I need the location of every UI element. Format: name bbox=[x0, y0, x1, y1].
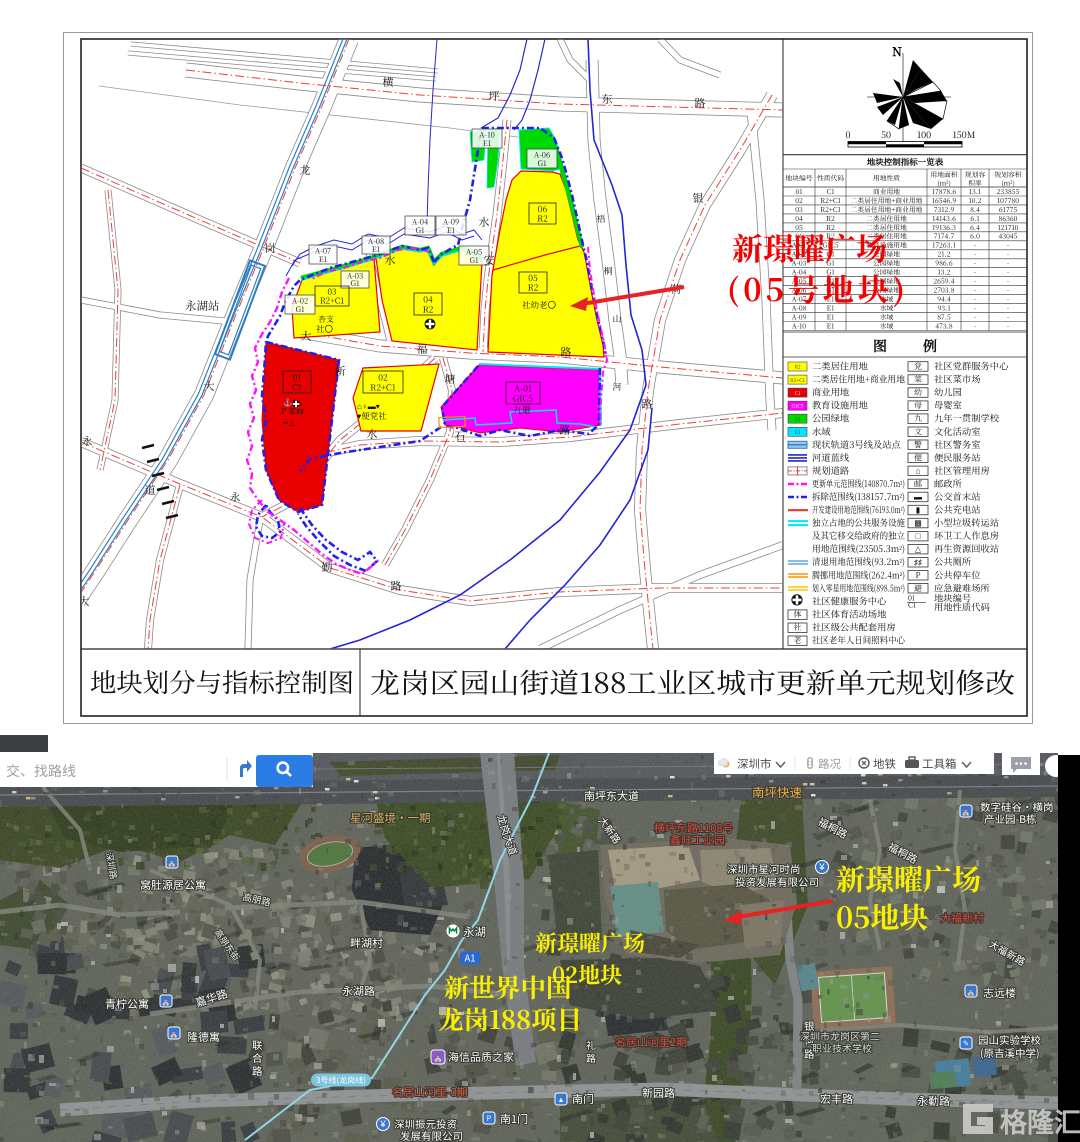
svg-text:▾便党社: ▾便党社 bbox=[357, 410, 387, 422]
svg-text:商业用地: 商业用地 bbox=[812, 385, 849, 399]
svg-text:投资发展有限公司: 投资发展有限公司 bbox=[735, 875, 819, 890]
svg-text:3号线(龙岗线): 3号线(龙岗线) bbox=[316, 1075, 366, 1086]
svg-text:A-10: A-10 bbox=[792, 320, 806, 330]
svg-text:C1: C1 bbox=[795, 390, 801, 397]
svg-text:东: 东 bbox=[602, 91, 613, 107]
svg-text:路: 路 bbox=[642, 396, 653, 412]
svg-text:性质代码: 性质代码 bbox=[817, 173, 844, 183]
svg-text:C1: C1 bbox=[908, 600, 916, 610]
svg-text:龙: 龙 bbox=[300, 162, 311, 178]
svg-text:格隆汇: 格隆汇 bbox=[1000, 1101, 1080, 1140]
svg-text:石: 石 bbox=[455, 428, 466, 444]
svg-text:道: 道 bbox=[145, 482, 156, 498]
svg-text:⌂: ⌂ bbox=[916, 465, 921, 476]
svg-text:大: 大 bbox=[204, 378, 215, 394]
svg-text:水: 水 bbox=[385, 252, 396, 268]
svg-text:P: P bbox=[915, 570, 920, 581]
svg-text:工具箱: 工具箱 bbox=[922, 756, 957, 772]
svg-text:□: □ bbox=[916, 531, 921, 542]
svg-text:¥: ¥ bbox=[379, 1117, 386, 1130]
svg-text:永湖: 永湖 bbox=[463, 924, 486, 940]
svg-text:河道蓝线: 河道蓝线 bbox=[812, 450, 850, 464]
svg-text:小型垃圾转运站: 小型垃圾转运站 bbox=[934, 515, 999, 529]
svg-text:文化活动室: 文化活动室 bbox=[934, 424, 981, 438]
svg-text:▬: ▬ bbox=[914, 492, 922, 503]
svg-text:南1门: 南1门 bbox=[500, 1111, 528, 1127]
svg-text:社区党群服务中心: 社区党群服务中心 bbox=[934, 359, 1009, 373]
svg-text:党: 党 bbox=[914, 361, 922, 372]
svg-text:路: 路 bbox=[560, 422, 571, 438]
svg-text:坪: 坪 bbox=[489, 88, 500, 104]
svg-text:P 菜♯♯: P 菜♯♯ bbox=[281, 406, 304, 417]
svg-text:用地性质: 用地性质 bbox=[873, 173, 900, 183]
svg-text:母婴室: 母婴室 bbox=[934, 398, 962, 412]
svg-text:E1: E1 bbox=[319, 254, 328, 265]
svg-text:现状轨道3号线及站点: 现状轨道3号线及站点 bbox=[812, 437, 902, 451]
svg-text:水域: 水域 bbox=[880, 320, 894, 330]
svg-text:畔湖村: 畔湖村 bbox=[350, 935, 383, 951]
svg-text:G1: G1 bbox=[295, 304, 305, 315]
svg-text:地块划分与指标控制图: 地块划分与指标控制图 bbox=[90, 663, 354, 700]
svg-text:社区警务室: 社区警务室 bbox=[934, 437, 981, 451]
svg-text:G1: G1 bbox=[794, 416, 801, 423]
svg-text:R2: R2 bbox=[794, 364, 801, 371]
svg-text:05地块: 05地块 bbox=[836, 896, 928, 937]
svg-text:地铁: 地铁 bbox=[873, 756, 896, 772]
svg-text:▪▪ △: ▪▪ △ bbox=[283, 418, 296, 428]
svg-text:九年一贯制学校: 九年一贯制学校 bbox=[934, 411, 1000, 425]
svg-text:名居山河里-3期: 名居山河里-3期 bbox=[392, 1084, 468, 1100]
svg-text:菜: 菜 bbox=[914, 374, 922, 385]
svg-text:幼: 幼 bbox=[914, 387, 922, 398]
svg-text:警: 警 bbox=[914, 439, 922, 450]
svg-text:南坪快速: 南坪快速 bbox=[752, 782, 803, 801]
svg-text:G1: G1 bbox=[415, 225, 425, 236]
svg-text:桐: 桐 bbox=[603, 264, 612, 277]
svg-text:再生资源回收站: 再生资源回收站 bbox=[934, 541, 999, 555]
svg-text:窝肚源居公寓: 窝肚源居公寓 bbox=[140, 877, 206, 893]
svg-text:永湖站: 永湖站 bbox=[185, 298, 220, 314]
svg-text:50: 50 bbox=[881, 128, 891, 141]
svg-text:▩: ▩ bbox=[914, 518, 922, 529]
svg-text:社幼老〇: 社幼老〇 bbox=[522, 299, 557, 311]
svg-text:⛪: ⛪ bbox=[167, 857, 176, 868]
svg-text:独立占地的公共服务设施: 独立占地的公共服务设施 bbox=[812, 515, 906, 529]
svg-text:E1: E1 bbox=[795, 429, 801, 436]
svg-text:路: 路 bbox=[252, 1064, 263, 1079]
svg-text:划入零星用地范围线(898.5m²): 划入零星用地范围线(898.5m²) bbox=[812, 580, 905, 594]
svg-text:山: 山 bbox=[612, 312, 621, 325]
svg-text:社区体育活动场地: 社区体育活动场地 bbox=[812, 606, 886, 620]
svg-text:⛪: ⛪ bbox=[433, 1052, 443, 1063]
svg-text:路: 路 bbox=[586, 1050, 596, 1065]
svg-text:¥: ¥ bbox=[818, 860, 825, 873]
svg-text:C1: C1 bbox=[292, 382, 302, 394]
svg-text:拆除范围线(138157.7m²): 拆除范围线(138157.7m²) bbox=[812, 489, 905, 503]
svg-text:九: 九 bbox=[914, 413, 922, 424]
svg-text:R2: R2 bbox=[423, 304, 434, 316]
svg-text:横: 横 bbox=[383, 74, 394, 90]
svg-text:新璟曜广场: 新璟曜广场 bbox=[836, 858, 981, 899]
svg-text:二类居住用地+商业用地: 二类居住用地+商业用地 bbox=[812, 372, 905, 386]
svg-text:(原吉溪中学): (原吉溪中学) bbox=[980, 1046, 1040, 1061]
svg-text:龙岗区园山街道188工业区城市更新单元规划修改: 龙岗区园山街道188工业区城市更新单元规划修改 bbox=[370, 662, 1015, 702]
svg-text:新璟曜广场: 新璟曜广场 bbox=[535, 927, 645, 958]
svg-text:社区管理用房: 社区管理用房 bbox=[934, 463, 990, 477]
svg-text:名居山河里2期: 名居山河里2期 bbox=[615, 1034, 687, 1050]
svg-text:路况: 路况 bbox=[818, 756, 841, 772]
svg-text:⛪: ⛪ bbox=[169, 1028, 178, 1039]
svg-text:交、找路线: 交、找路线 bbox=[6, 761, 76, 781]
svg-text:勤: 勤 bbox=[322, 559, 333, 575]
svg-text:梧: 梧 bbox=[596, 212, 605, 225]
svg-text:用地性质代码: 用地性质代码 bbox=[934, 599, 990, 613]
svg-text:▮: ▮ bbox=[916, 505, 920, 516]
svg-text:永勤路: 永勤路 bbox=[917, 1093, 950, 1109]
svg-text:GIC5: GIC5 bbox=[792, 403, 804, 410]
svg-text:公共充电站: 公共充电站 bbox=[934, 502, 981, 516]
svg-text:公共停车位: 公共停车位 bbox=[934, 567, 981, 581]
svg-text:深圳市: 深圳市 bbox=[737, 756, 772, 772]
svg-text:地块控制指标一览表: 地块控制指标一览表 bbox=[867, 156, 944, 168]
svg-text:南门: 南门 bbox=[572, 1091, 594, 1107]
svg-text:路: 路 bbox=[391, 578, 402, 594]
svg-text:E1: E1 bbox=[447, 225, 456, 236]
svg-text:二类居住用地: 二类居住用地 bbox=[812, 359, 868, 373]
svg-text:环卫工人作息房: 环卫工人作息房 bbox=[934, 528, 999, 542]
svg-text:E1: E1 bbox=[372, 244, 381, 255]
svg-text:海信品质之家: 海信品质之家 bbox=[448, 1049, 514, 1065]
svg-text:⛪: ⛪ bbox=[966, 986, 975, 997]
svg-text:银: 银 bbox=[693, 190, 704, 206]
svg-text:R2+C1: R2+C1 bbox=[320, 296, 344, 307]
svg-text:G1: G1 bbox=[350, 278, 360, 289]
svg-text:N: N bbox=[892, 43, 902, 60]
svg-text:星河盛境·一期: 星河盛境·一期 bbox=[350, 810, 431, 826]
svg-text:100: 100 bbox=[917, 128, 931, 141]
svg-text:避: 避 bbox=[914, 583, 922, 594]
svg-text:龙岗188项目: 龙岗188项目 bbox=[438, 1001, 582, 1037]
svg-text:社: 社 bbox=[794, 622, 802, 633]
svg-text:✎: ✎ bbox=[963, 1038, 969, 1049]
svg-text:鑫旺工业园: 鑫旺工业园 bbox=[670, 832, 725, 848]
svg-text:社区级公共配套用房: 社区级公共配套用房 bbox=[812, 620, 896, 634]
svg-text:G1: G1 bbox=[469, 255, 479, 266]
svg-text:水: 水 bbox=[479, 214, 490, 230]
svg-text:社区健康服务中心: 社区健康服务中心 bbox=[812, 593, 887, 607]
svg-text:路: 路 bbox=[561, 344, 572, 360]
svg-text:邮: 邮 bbox=[914, 479, 922, 490]
svg-text:青柠公寓: 青柠公寓 bbox=[105, 996, 149, 1012]
svg-text:R2: R2 bbox=[537, 213, 548, 225]
svg-text:(05号地块): (05号地块) bbox=[727, 265, 905, 310]
svg-text:腾挪用地范围线(262.4m²): 腾挪用地范围线(262.4m²) bbox=[812, 567, 905, 581]
svg-text:幼儿园: 幼儿园 bbox=[934, 385, 962, 399]
svg-text:R2+C1: R2+C1 bbox=[790, 377, 806, 384]
svg-text:公交首末站: 公交首末站 bbox=[934, 489, 981, 503]
svg-text:新璟曜广场: 新璟曜广场 bbox=[732, 224, 887, 269]
svg-text:地块编号: 地块编号 bbox=[785, 173, 812, 183]
svg-text:清退用地范围线(93.2m²): 清退用地范围线(93.2m²) bbox=[812, 554, 905, 568]
svg-text:▲: ▲ bbox=[557, 1094, 564, 1105]
svg-text:新园路: 新园路 bbox=[642, 1085, 675, 1101]
svg-text:新: 新 bbox=[335, 363, 346, 379]
svg-text:473.8: 473.8 bbox=[935, 320, 953, 330]
svg-text:志远楼: 志远楼 bbox=[983, 985, 1016, 1001]
svg-text:宏丰路: 宏丰路 bbox=[820, 1091, 853, 1107]
svg-text:岗: 岗 bbox=[265, 240, 276, 256]
svg-text:福: 福 bbox=[417, 341, 428, 357]
svg-text:R2: R2 bbox=[528, 282, 539, 294]
svg-text:E1: E1 bbox=[483, 138, 492, 149]
svg-text:大福新村: 大福新村 bbox=[940, 910, 984, 926]
svg-text:九避: 九避 bbox=[513, 403, 531, 416]
svg-text:产业园-B栋: 产业园-B栋 bbox=[984, 812, 1037, 827]
svg-text:永: 永 bbox=[230, 489, 241, 505]
svg-text:社区菜市场: 社区菜市场 bbox=[934, 372, 981, 386]
svg-text:便: 便 bbox=[914, 452, 922, 463]
svg-text:用地范围线(23505.3m²): 用地范围线(23505.3m²) bbox=[812, 541, 905, 555]
svg-text:教育设施用地: 教育设施用地 bbox=[812, 398, 868, 412]
svg-text:塘: 塘 bbox=[445, 371, 456, 387]
svg-text:公园绿地: 公园绿地 bbox=[812, 411, 849, 425]
svg-text:大: 大 bbox=[301, 328, 312, 344]
svg-text:永湖路: 永湖路 bbox=[342, 983, 375, 999]
svg-text:图例: 图例 bbox=[873, 336, 973, 356]
svg-text:0: 0 bbox=[845, 128, 850, 141]
svg-text:⛪: ⛪ bbox=[161, 996, 170, 1007]
svg-text:职业技术学校: 职业技术学校 bbox=[812, 1040, 872, 1055]
svg-text:社区老年人日间照料中心: 社区老年人日间照料中心 bbox=[812, 633, 906, 647]
svg-text:150M: 150M bbox=[952, 128, 975, 141]
svg-text:及其它移交给政府的独立: 及其它移交给政府的独立 bbox=[812, 528, 905, 542]
svg-text:规划道路: 规划道路 bbox=[812, 463, 850, 477]
svg-text:永: 永 bbox=[82, 433, 93, 449]
svg-text:文: 文 bbox=[914, 426, 922, 437]
svg-text:水域: 水域 bbox=[812, 424, 831, 438]
svg-text:路: 路 bbox=[695, 95, 706, 111]
svg-text:水: 水 bbox=[367, 426, 378, 442]
svg-text:新世界中国: 新世界中国 bbox=[444, 969, 572, 1005]
svg-text:老: 老 bbox=[794, 635, 802, 646]
svg-text:A1: A1 bbox=[464, 951, 475, 965]
svg-text:更新单元范围线(140870.7m²): 更新单元范围线(140870.7m²) bbox=[812, 476, 905, 490]
svg-text:邮政所: 邮政所 bbox=[934, 476, 962, 490]
svg-text:P: P bbox=[487, 1113, 492, 1124]
svg-text:隆德寓: 隆德寓 bbox=[187, 1029, 220, 1045]
svg-text:便民服务站: 便民服务站 bbox=[934, 450, 981, 464]
svg-text:公共厕所: 公共厕所 bbox=[934, 554, 971, 568]
svg-text:母: 母 bbox=[914, 400, 922, 411]
svg-text:⛪: ⛪ bbox=[961, 806, 970, 817]
svg-text:△: △ bbox=[915, 544, 922, 555]
svg-text:体: 体 bbox=[794, 609, 802, 620]
svg-text:E1: E1 bbox=[827, 320, 835, 330]
svg-text:G1: G1 bbox=[537, 158, 547, 169]
svg-text:河: 河 bbox=[612, 380, 621, 393]
svg-text:开发建设用地范围线(76193.0m²): 开发建设用地范围线(76193.0m²) bbox=[812, 502, 905, 516]
svg-text:R2+C1: R2+C1 bbox=[370, 382, 396, 394]
svg-text:南坪东大道: 南坪东大道 bbox=[584, 788, 639, 804]
svg-text:社〇: 社〇 bbox=[316, 323, 334, 335]
svg-text:♯♯: ♯♯ bbox=[914, 557, 922, 568]
svg-text:安: 安 bbox=[484, 252, 495, 268]
svg-text:发展有限公司: 发展有限公司 bbox=[400, 1129, 463, 1142]
